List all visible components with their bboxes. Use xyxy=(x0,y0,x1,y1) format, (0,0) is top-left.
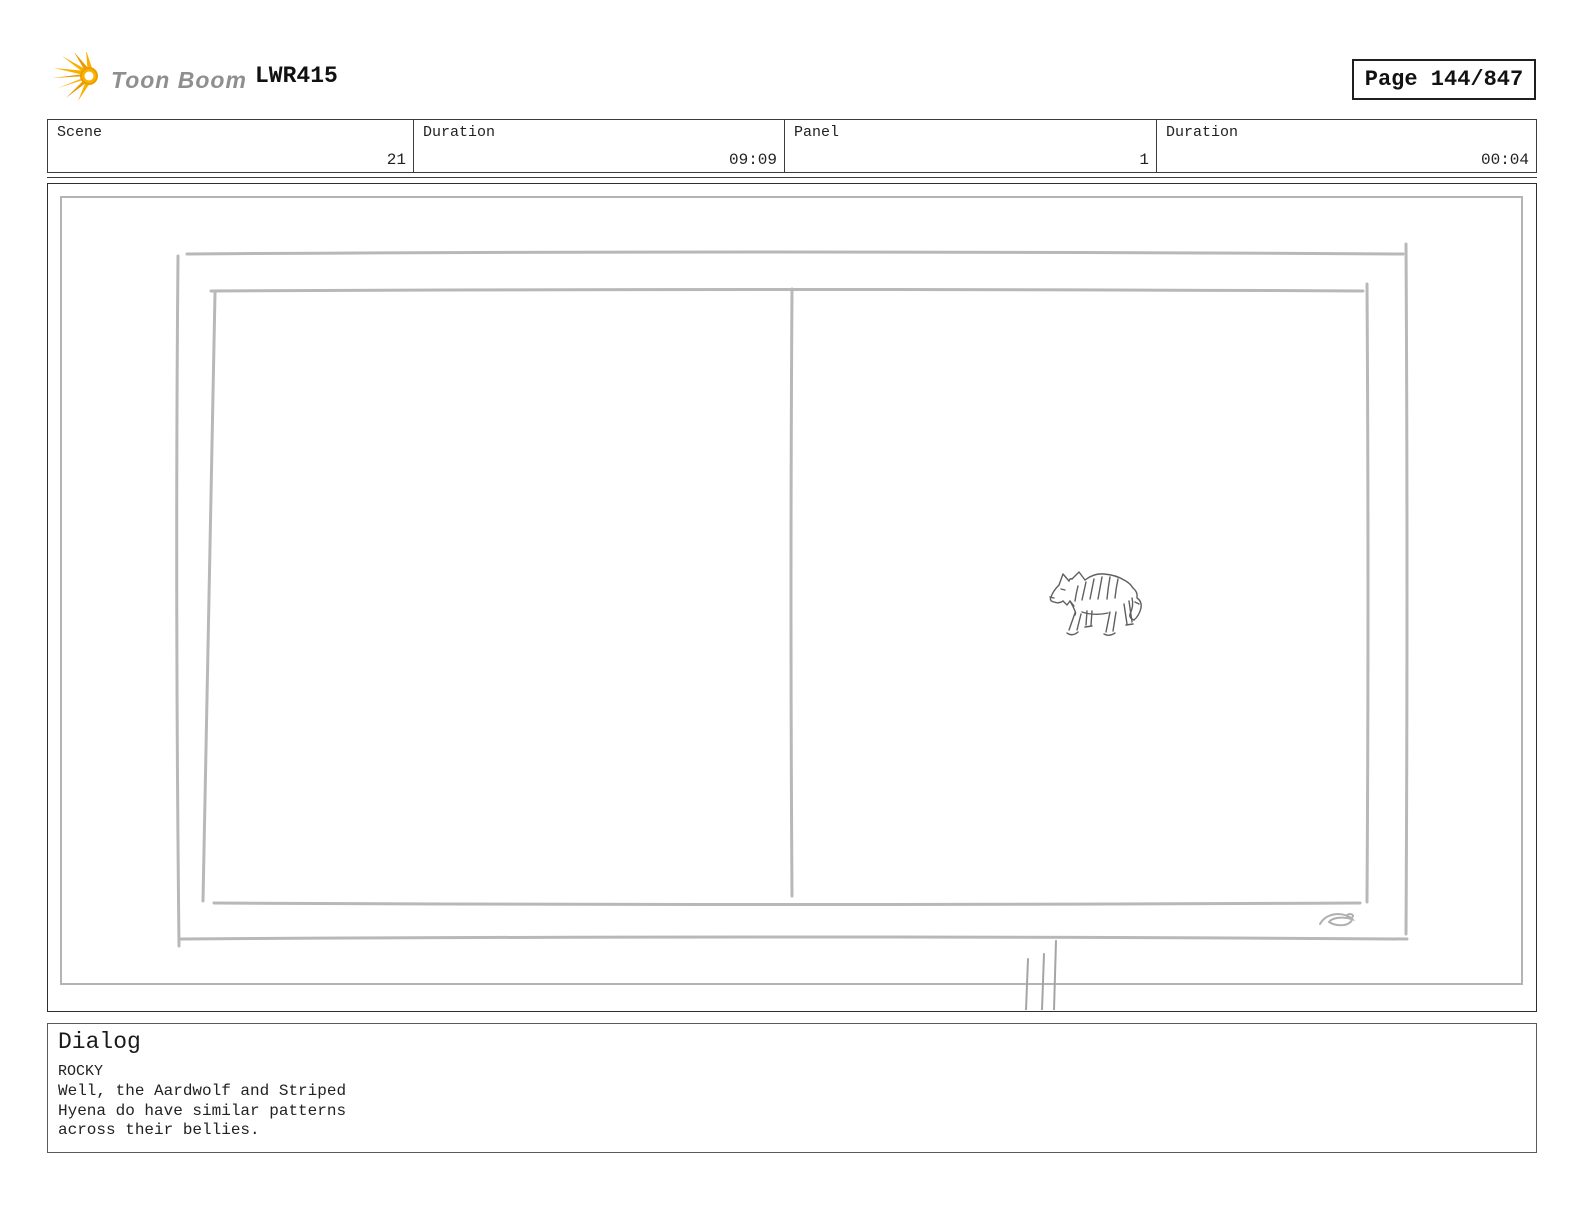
dialog-box: Dialog ROCKY Well, the Aardwolf and Stri… xyxy=(47,1023,1537,1153)
page-number-box: Page 144/847 xyxy=(1352,59,1536,100)
scene-duration-label: Duration xyxy=(423,124,495,141)
dialog-line: Hyena do have similar patterns xyxy=(58,1102,1526,1122)
project-code: LWR415 xyxy=(255,63,338,89)
panel-label: Panel xyxy=(794,124,839,141)
panel-duration-label: Duration xyxy=(1166,124,1238,141)
scene-value: 21 xyxy=(387,151,406,169)
sketch-frame-lines xyxy=(177,244,1407,946)
panel-duration-value: 00:04 xyxy=(1481,151,1529,169)
toon-boom-starburst-icon xyxy=(52,52,104,102)
meta-cell-panel: Panel 1 xyxy=(784,120,1156,172)
scene-duration-value: 09:09 xyxy=(729,151,777,169)
metadata-table: Scene 21 Duration 09:09 Panel 1 Duration… xyxy=(47,119,1537,173)
toon-boom-logo: Toon Boom xyxy=(52,52,247,102)
table-bottom-rule xyxy=(47,177,1537,178)
logo-text: Toon Boom xyxy=(111,61,247,94)
meta-cell-panel-duration: Duration 00:04 xyxy=(1156,120,1536,172)
scene-label: Scene xyxy=(57,124,102,141)
dialog-character: ROCKY xyxy=(58,1062,1526,1082)
meta-cell-scene: Scene 21 xyxy=(48,120,413,172)
hyena-sketch-icon xyxy=(1050,572,1141,635)
meta-cell-scene-duration: Duration 09:09 xyxy=(413,120,784,172)
storyboard-panel xyxy=(47,183,1537,1012)
sketch-center-divider xyxy=(791,289,792,896)
panel-value: 1 xyxy=(1139,151,1149,169)
sketch-stand-lines xyxy=(1026,941,1056,1010)
dialog-line: across their bellies. xyxy=(58,1121,1526,1141)
dialog-line: Well, the Aardwolf and Striped xyxy=(58,1082,1526,1102)
dialog-title: Dialog xyxy=(58,1029,1526,1055)
swirl-doodle-icon xyxy=(1320,914,1353,925)
panel-sketch xyxy=(48,184,1535,1010)
page-number-label: Page 144/847 xyxy=(1365,67,1523,92)
